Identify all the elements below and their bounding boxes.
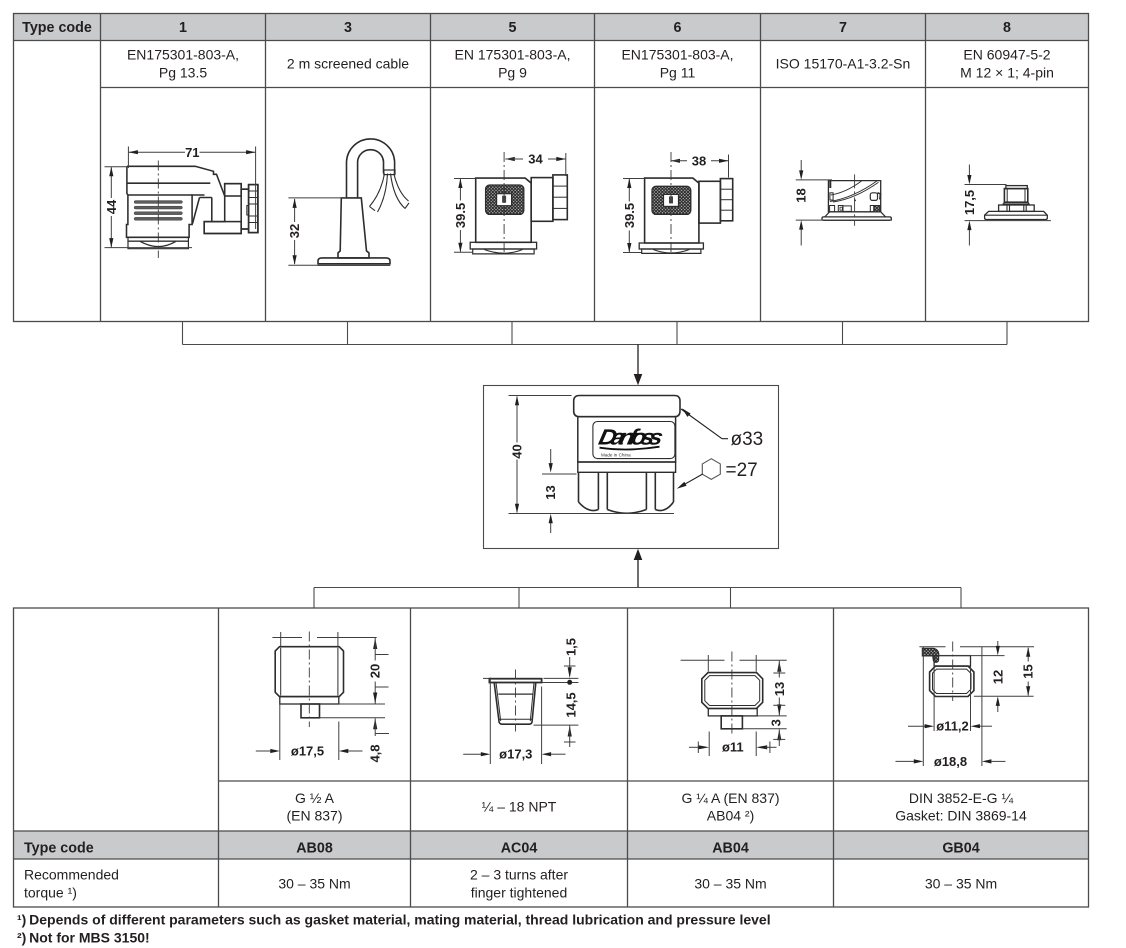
svg-text:32: 32 xyxy=(287,224,302,238)
svg-text:M 12 × 1; 4-pin: M 12 × 1; 4-pin xyxy=(960,65,1054,81)
svg-text:30 – 35 Nm: 30 – 35 Nm xyxy=(278,876,350,892)
svg-text:18: 18 xyxy=(794,188,809,202)
svg-text:Gasket: DIN 3869-14: Gasket: DIN 3869-14 xyxy=(895,808,1027,824)
svg-text:EN 60947-5-2: EN 60947-5-2 xyxy=(963,47,1050,63)
svg-text:¹) Depends of different parame: ¹) Depends of different parameters such … xyxy=(17,912,771,928)
svg-text:30 – 35 Nm: 30 – 35 Nm xyxy=(925,876,997,892)
svg-text:3: 3 xyxy=(344,20,352,36)
svg-text:finger tightened: finger tightened xyxy=(471,885,568,901)
svg-text:30 – 35 Nm: 30 – 35 Nm xyxy=(694,876,766,892)
svg-text:ø11,2: ø11,2 xyxy=(936,719,969,734)
svg-text:AC04: AC04 xyxy=(501,841,538,857)
svg-text:GB04: GB04 xyxy=(942,841,979,857)
svg-text:13: 13 xyxy=(543,485,558,499)
svg-text:EN175301-803-A,: EN175301-803-A, xyxy=(127,47,239,63)
svg-text:Made in China: Made in China xyxy=(601,453,631,458)
svg-text:17,5: 17,5 xyxy=(962,190,977,215)
svg-text:¼ – 18 NPT: ¼ – 18 NPT xyxy=(482,799,557,815)
svg-text:ø33: ø33 xyxy=(731,429,764,450)
svg-text:G ½ A: G ½ A xyxy=(295,790,335,806)
svg-text:Recommended: Recommended xyxy=(24,867,119,883)
svg-text:3: 3 xyxy=(768,719,783,726)
svg-text:(EN 837): (EN 837) xyxy=(286,808,342,824)
svg-text:40: 40 xyxy=(510,444,525,458)
svg-text:44: 44 xyxy=(104,199,119,214)
svg-text:14,5: 14,5 xyxy=(564,692,579,717)
svg-text:Type code: Type code xyxy=(24,841,94,857)
svg-text:Type code: Type code xyxy=(22,20,92,36)
svg-text:EN175301-803-A,: EN175301-803-A, xyxy=(621,47,733,63)
svg-text:ø17,5: ø17,5 xyxy=(291,744,324,759)
svg-text:1: 1 xyxy=(179,20,187,36)
svg-text:2 m screened cable: 2 m screened cable xyxy=(287,56,409,72)
svg-text:ø11: ø11 xyxy=(722,740,744,755)
svg-text:Pg 9: Pg 9 xyxy=(498,65,527,81)
svg-text:6: 6 xyxy=(674,20,682,36)
svg-text:AB08: AB08 xyxy=(296,841,333,857)
svg-text:71: 71 xyxy=(185,145,199,160)
svg-text:Pg 13.5: Pg 13.5 xyxy=(159,65,207,81)
svg-text:Pg 11: Pg 11 xyxy=(660,65,696,81)
svg-text:7: 7 xyxy=(839,20,847,36)
svg-text:39.5: 39.5 xyxy=(622,203,637,228)
svg-text:8: 8 xyxy=(1003,20,1011,36)
svg-text:15: 15 xyxy=(1021,664,1036,678)
svg-text:ø18,8: ø18,8 xyxy=(934,754,967,769)
svg-text:38: 38 xyxy=(692,154,706,169)
svg-text:39.5: 39.5 xyxy=(453,203,468,228)
svg-text:4,8: 4,8 xyxy=(368,744,383,762)
svg-text:1,5: 1,5 xyxy=(564,638,579,656)
svg-text:DIN 3852-E-G ¼: DIN 3852-E-G ¼ xyxy=(909,790,1014,806)
svg-text:13: 13 xyxy=(772,682,787,696)
svg-text:torque ¹): torque ¹) xyxy=(24,885,77,901)
svg-text:AB04 ²): AB04 ²) xyxy=(707,808,754,824)
svg-text:²) Not for MBS 3150!: ²) Not for MBS 3150! xyxy=(17,930,150,946)
svg-text:G ¼ A (EN 837): G ¼ A (EN 837) xyxy=(681,790,779,806)
svg-text:12: 12 xyxy=(990,670,1005,684)
svg-text:ISO 15170-A1-3.2-Sn: ISO 15170-A1-3.2-Sn xyxy=(776,56,911,72)
svg-text:34: 34 xyxy=(528,152,543,167)
svg-text:EN 175301-803-A,: EN 175301-803-A, xyxy=(455,47,571,63)
svg-text:Danfoss: Danfoss xyxy=(597,425,666,449)
svg-text:20: 20 xyxy=(367,664,382,678)
svg-text:=27: =27 xyxy=(726,460,758,481)
svg-text:AB04: AB04 xyxy=(712,841,749,857)
svg-text:2 – 3 turns after: 2 – 3 turns after xyxy=(470,867,568,883)
svg-text:5: 5 xyxy=(509,20,517,36)
svg-text:ø17,3: ø17,3 xyxy=(499,747,532,762)
